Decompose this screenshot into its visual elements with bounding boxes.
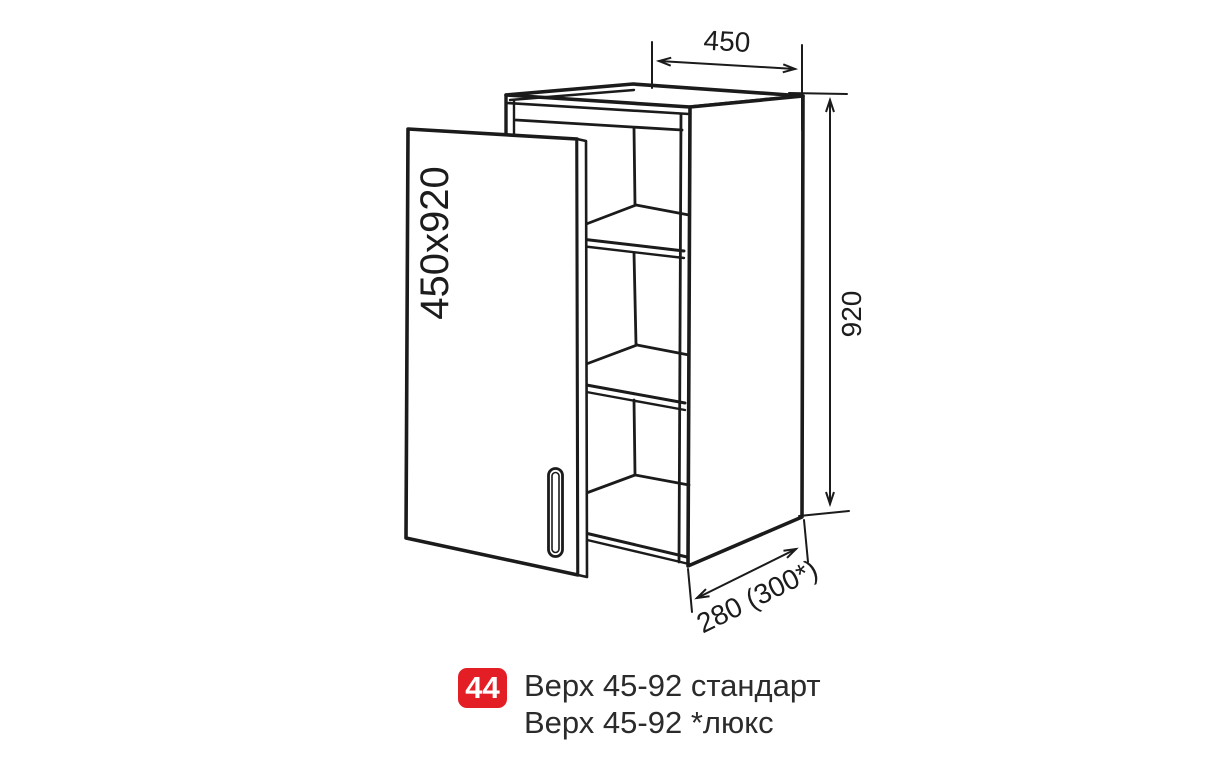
dimension-depth-label: 280 (300*) — [692, 553, 823, 639]
interior-back-corner-line — [634, 253, 636, 344]
witness-line — [789, 93, 847, 94]
dimension-arrow — [659, 61, 795, 69]
shelf-left-edge — [581, 205, 636, 226]
caption-line-1: Верх 45-92 стандарт — [524, 667, 821, 704]
bottom-front-top-edge — [581, 532, 687, 557]
shelf-1 — [581, 205, 689, 258]
caption-line-2: Верх 45-92 *люкс — [524, 704, 821, 741]
cabinet-right-stile-inner — [679, 114, 681, 562]
cabinet-bottom — [581, 475, 689, 564]
door-handle — [549, 469, 563, 557]
cabinet-top-rail-inner-edge — [516, 120, 682, 130]
furniture-dimension-diagram: 450x920 450 920 280 (300*) — [0, 0, 1230, 769]
bottom-back-edge — [635, 475, 689, 485]
door-size-label: 450x920 — [413, 166, 457, 319]
shelf-2 — [581, 345, 689, 410]
interior-back-corner-line — [634, 128, 635, 205]
bottom-left-edge — [581, 475, 635, 495]
item-caption-text: Верх 45-92 стандарт Верх 45-92 *люкс — [524, 666, 821, 741]
witness-line — [688, 569, 692, 612]
dimension-height-label: 920 — [836, 291, 867, 338]
cabinet-right-panel — [688, 96, 803, 566]
witness-line — [799, 511, 849, 516]
cabinet-door: 450x920 — [406, 129, 587, 577]
item-caption: 44 Верх 45-92 стандарт Верх 45-92 *люкс — [458, 666, 821, 741]
bottom-front-bottom-edge — [583, 539, 689, 564]
item-number-badge: 44 — [458, 668, 507, 708]
interior-back-corner-line — [634, 400, 635, 474]
dimension-width-label: 450 — [703, 25, 751, 58]
shelf-left-edge — [581, 345, 637, 366]
shelf-front-top-edge — [581, 239, 684, 251]
door-edge-strip — [577, 139, 587, 577]
